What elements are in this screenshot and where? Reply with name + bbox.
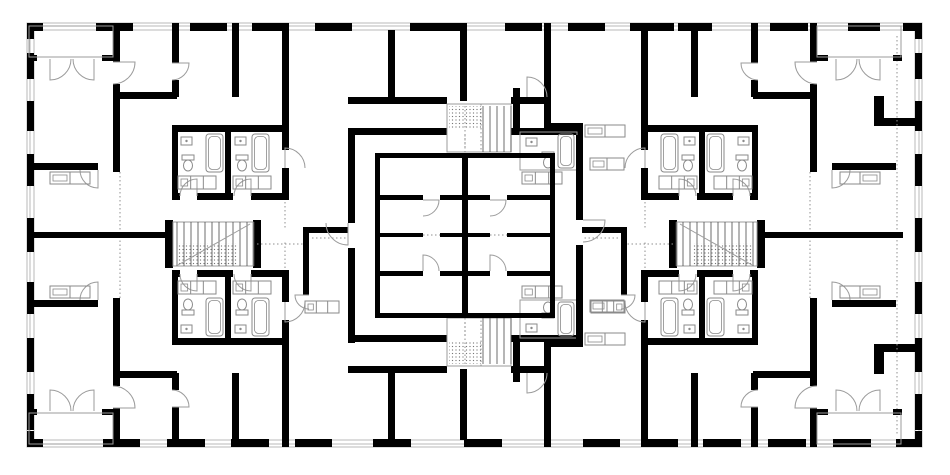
toilet-fixture — [738, 160, 747, 171]
door-arc — [50, 390, 71, 411]
kitchen-counter — [593, 161, 604, 167]
door-arc — [180, 274, 197, 291]
door-arc — [295, 295, 309, 309]
door-arc — [621, 295, 635, 309]
wall-segment — [505, 23, 542, 31]
door-arc — [859, 59, 880, 80]
sink-fixture — [185, 140, 187, 142]
toilet-fixture — [684, 299, 693, 310]
wall-segment — [764, 232, 903, 238]
wall-segment — [697, 270, 733, 277]
wall-segment — [410, 23, 467, 31]
wall-segment — [232, 23, 239, 97]
bathtub-fixture — [561, 305, 572, 334]
kitchen-counter — [53, 289, 67, 295]
wall-segment — [833, 439, 871, 447]
wall-segment — [848, 23, 880, 31]
door-arc — [50, 59, 71, 80]
wall-segment — [117, 92, 177, 99]
wall-segment — [568, 23, 605, 31]
wall-segment — [753, 92, 813, 99]
wall-segment — [440, 271, 490, 276]
wall-segment — [915, 23, 922, 39]
toilet-fixture — [738, 299, 747, 310]
door-arc — [73, 390, 94, 411]
kitchen-counter — [659, 176, 697, 189]
toilet-fixture — [238, 160, 247, 171]
wall-segment — [232, 373, 239, 447]
wall-segment — [388, 369, 395, 440]
bathtub-fixture — [209, 301, 221, 334]
wall-segment — [251, 270, 289, 277]
door-arc — [795, 386, 817, 408]
wall-segment — [172, 277, 178, 338]
wall-segment — [691, 23, 698, 97]
wall-segment — [817, 55, 828, 61]
door-arc — [423, 255, 439, 271]
wall-segment — [103, 439, 140, 447]
sink-fixture — [239, 140, 241, 142]
door-arc — [490, 200, 506, 216]
wall-segment — [915, 53, 922, 79]
wall-segment — [117, 371, 177, 378]
sink-fixture — [530, 327, 532, 329]
shaft-grid — [375, 153, 380, 318]
facade-step-notch — [874, 344, 884, 374]
wall-segment — [348, 97, 447, 104]
wall-segment — [703, 439, 741, 447]
wall-segment — [810, 408, 817, 447]
kitchen-counter — [687, 284, 694, 291]
kitchen-counter — [863, 175, 877, 181]
toilet-fixture — [184, 160, 193, 171]
wall-segment — [513, 88, 520, 132]
wall-segment — [544, 23, 551, 130]
bathtub-fixture — [710, 301, 722, 334]
wall-segment — [102, 409, 113, 415]
wall-segment — [460, 30, 467, 101]
toilet-fixture — [182, 310, 194, 315]
wall-segment — [34, 300, 98, 307]
wall-segment — [751, 23, 758, 63]
door-arc — [113, 62, 135, 84]
floor-plan-drawing — [0, 0, 950, 475]
wall-segment — [27, 101, 34, 131]
bathtub-fixture — [255, 137, 267, 170]
wall-segment — [915, 394, 922, 430]
kitchen-counter — [588, 336, 602, 342]
wall-segment — [102, 55, 113, 61]
wall-segment — [27, 154, 34, 186]
shaft-grid — [375, 313, 555, 318]
wall-segment — [172, 132, 178, 193]
door-arc — [832, 170, 850, 188]
kitchen-counter — [522, 286, 562, 298]
door-arc — [795, 62, 817, 84]
stair-hatch — [693, 243, 753, 265]
toilet-fixture — [182, 155, 194, 160]
layer-quadrant-mirror-1 — [625, 23, 902, 232]
wall-segment — [388, 30, 395, 101]
kitchen-counter — [236, 179, 243, 186]
door-arc — [285, 302, 305, 322]
wall-segment — [832, 300, 896, 307]
wall-segment — [915, 282, 922, 314]
facade-step-notch — [884, 344, 918, 352]
layer-quadrant-mirror-2 — [28, 238, 305, 447]
toilet-fixture — [682, 310, 694, 315]
layer-vstrip-mirror-1 — [348, 286, 625, 447]
toilet-fixture — [682, 155, 694, 160]
kitchen-counter — [659, 281, 697, 294]
wall-segment — [699, 132, 705, 193]
kitchen-counter — [233, 281, 271, 294]
wall-segment — [440, 195, 490, 200]
sink-fixture — [742, 140, 744, 142]
wall-segment — [303, 233, 309, 295]
wall-segment — [757, 220, 765, 268]
wall-segment — [915, 431, 922, 447]
core-wall — [576, 245, 583, 343]
wall-segment — [752, 277, 758, 338]
bath-block-wall — [172, 125, 289, 132]
stair-hatch — [177, 243, 237, 265]
stair-hatch — [449, 342, 481, 364]
door-arc — [172, 63, 189, 80]
wall-segment — [373, 439, 411, 447]
wall-segment — [380, 271, 423, 276]
bathtub-fixture — [710, 137, 722, 170]
wall-segment — [172, 407, 179, 447]
sink-fixture — [742, 328, 744, 330]
kitchen-counter — [687, 179, 694, 186]
door-arc — [490, 255, 506, 271]
layer-vstrip — [348, 23, 625, 184]
wall-segment — [172, 193, 180, 200]
bath-block-wall — [172, 338, 289, 345]
bath-block-wall — [641, 125, 758, 132]
wall-segment — [810, 23, 817, 62]
wall-segment — [27, 338, 34, 372]
wall-segment — [172, 270, 180, 277]
sink-fixture — [530, 141, 532, 143]
toilet-fixture — [238, 299, 247, 310]
wall-segment — [768, 439, 806, 447]
core-wall — [576, 135, 583, 220]
layer-quadrant-mirror-3 — [625, 238, 902, 447]
wall-segment — [34, 163, 98, 170]
kitchen-counter — [863, 289, 877, 295]
stair-hatch — [449, 106, 481, 128]
wall-segment — [315, 23, 352, 31]
floor-plan-page — [0, 0, 950, 475]
core-wall — [348, 128, 447, 135]
shaft-grid — [550, 153, 555, 318]
toilet-fixture — [736, 310, 748, 315]
wall-segment — [507, 233, 550, 237]
wall-segment — [770, 23, 808, 31]
wall-segment — [27, 282, 34, 314]
kitchen-counter — [305, 301, 339, 313]
wall-segment — [197, 193, 233, 200]
wall-segment — [915, 101, 922, 131]
wall-segment — [197, 270, 233, 277]
wall-segment — [295, 439, 332, 447]
door-arc — [741, 390, 758, 407]
wall-segment — [27, 23, 34, 39]
wall-segment — [751, 407, 758, 447]
toilet-fixture — [736, 155, 748, 160]
bathtub-fixture — [664, 301, 676, 334]
wall-segment — [440, 233, 490, 237]
door-arc — [832, 282, 850, 300]
core-wall — [348, 135, 355, 223]
wall-segment — [817, 409, 828, 415]
wall-segment — [641, 270, 679, 277]
facade-step-notch — [884, 118, 918, 126]
shaft-grid — [375, 153, 555, 158]
wall-segment — [583, 439, 620, 447]
layer-quadrant — [28, 23, 305, 232]
bathtub-fixture — [209, 137, 221, 170]
door-arc — [113, 386, 135, 408]
door-arc — [73, 59, 94, 80]
wall-segment — [113, 23, 120, 62]
wall-segment — [225, 277, 231, 338]
wall-segment — [915, 218, 922, 252]
wall-segment — [464, 439, 502, 447]
toilet-fixture — [184, 299, 193, 310]
kitchen-counter — [525, 289, 532, 295]
door-arc — [172, 390, 189, 407]
door-arc — [180, 179, 197, 196]
wall-segment — [190, 23, 227, 31]
wall-segment — [380, 233, 423, 237]
wall-segment — [750, 270, 758, 277]
wall-segment — [460, 369, 467, 440]
wall-segment — [641, 193, 679, 200]
kitchen-counter — [53, 175, 67, 181]
toilet-fixture — [236, 155, 248, 160]
wall-segment — [113, 408, 120, 447]
core-wall — [348, 248, 355, 343]
wall-segment — [621, 233, 627, 295]
door-arc — [80, 282, 98, 300]
wall-segment — [380, 195, 423, 200]
door-arc — [423, 200, 439, 216]
wall-segment — [750, 193, 758, 200]
wall-segment — [832, 163, 896, 170]
wall-segment — [544, 340, 551, 447]
sink-fixture — [185, 328, 187, 330]
wall-segment — [915, 338, 922, 372]
door-arc — [836, 59, 857, 80]
wall-segment — [172, 23, 179, 63]
door-arc — [285, 148, 305, 168]
wall-segment — [513, 338, 520, 382]
door-arc — [625, 148, 645, 168]
core-wall — [348, 335, 447, 342]
door-arc — [741, 63, 758, 80]
wall-segment — [27, 431, 34, 447]
bath-block-wall — [641, 338, 758, 345]
toilet-fixture — [684, 160, 693, 171]
sink-fixture — [688, 328, 690, 330]
door-arc — [859, 390, 880, 411]
wall-segment — [27, 232, 166, 238]
kitchen-counter — [525, 175, 532, 181]
wall-segment — [251, 193, 289, 200]
door-arc — [733, 274, 750, 291]
wall-segment — [225, 132, 231, 193]
wall-segment — [915, 154, 922, 186]
bathtub-fixture — [561, 137, 572, 166]
door-arc — [326, 223, 348, 245]
bathtub-fixture — [255, 301, 267, 334]
wall-segment — [697, 193, 733, 200]
kitchen-counter — [588, 128, 602, 134]
wall-segment — [582, 227, 627, 233]
wall-segment — [753, 371, 813, 378]
wall-segment — [507, 195, 550, 200]
door-arc — [625, 302, 645, 322]
wall-segment — [165, 220, 173, 268]
kitchen-counter — [522, 172, 562, 184]
wall-segment — [348, 366, 447, 373]
kitchen-counter — [233, 176, 271, 189]
wall-segment — [699, 277, 705, 338]
door-arc — [733, 179, 750, 196]
sink-fixture — [688, 140, 690, 142]
bathtub-fixture — [664, 137, 676, 170]
door-arc — [836, 390, 857, 411]
wall-segment — [630, 23, 674, 31]
kitchen-counter — [236, 284, 243, 291]
wall-segment — [691, 373, 698, 447]
door-arc — [80, 170, 98, 188]
wall-segment — [303, 227, 348, 233]
facade-step-notch — [874, 96, 884, 126]
sink-fixture — [239, 328, 241, 330]
wall-segment — [752, 132, 758, 193]
toilet-fixture — [236, 310, 248, 315]
wall-segment — [507, 271, 550, 276]
layer-core — [326, 135, 605, 343]
